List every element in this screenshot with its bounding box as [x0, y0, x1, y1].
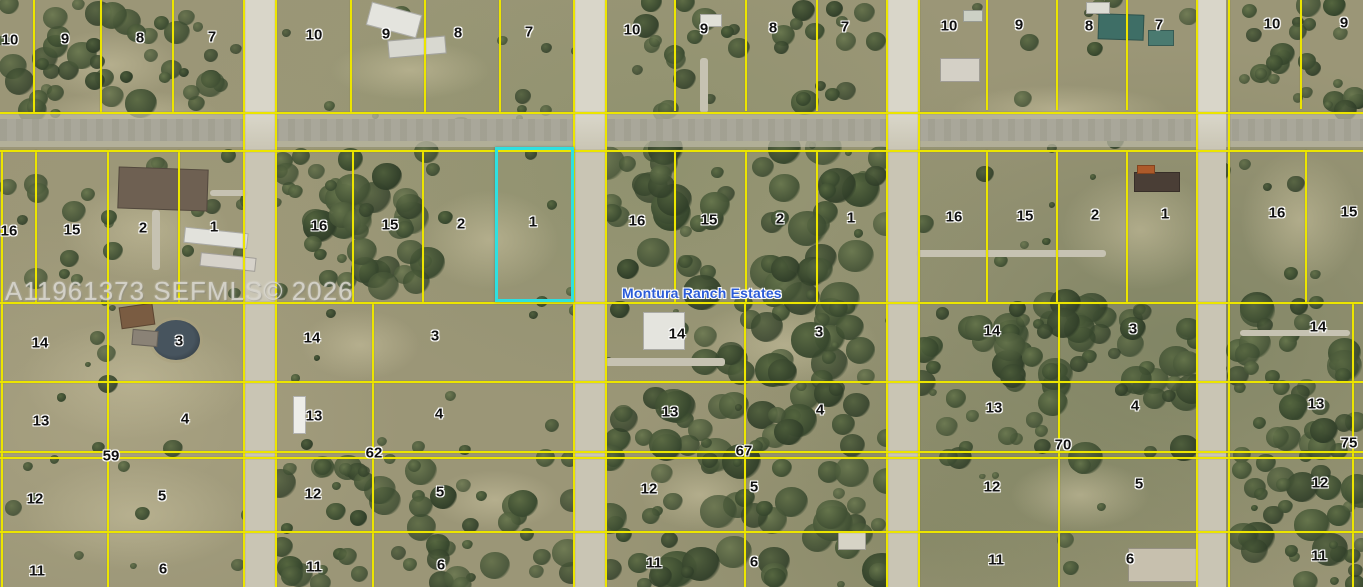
mls-watermark: A11961373 SEFMLS© 2026	[5, 276, 354, 307]
street-number-label: 75	[1341, 435, 1358, 452]
street-number-label: 70	[1055, 437, 1072, 454]
lot-number-label: 12	[27, 491, 44, 508]
street-number-label: 59	[103, 448, 120, 465]
lot-number-label: 8	[454, 25, 462, 42]
lot-number-label: 3	[431, 328, 439, 345]
lot-number-label: 2	[776, 211, 784, 228]
street-number-label: 67	[736, 443, 753, 460]
lot-number-label: 14	[984, 323, 1001, 340]
lot-number-label: 11	[306, 559, 322, 576]
lot-number-label: 1	[529, 214, 537, 231]
lot-number-label: 16	[629, 213, 646, 230]
lot-number-label: 15	[382, 217, 399, 234]
lot-number-label: 10	[624, 22, 641, 39]
lot-number-label: 1	[1161, 206, 1169, 223]
lot-number-label: 10	[1264, 16, 1281, 33]
lot-number-label: 16	[1, 223, 18, 240]
lot-number-label: 12	[984, 479, 1001, 496]
mls-aerial-parcel-map: 1098710987109871098710916152116152116152…	[0, 0, 1363, 587]
lot-number-label: 8	[136, 30, 144, 47]
lot-number-label: 9	[61, 31, 69, 48]
lot-number-label: 16	[311, 218, 328, 235]
lot-number-label: 16	[946, 209, 963, 226]
lot-number-label: 2	[139, 220, 147, 237]
lot-number-label: 7	[1155, 17, 1163, 34]
lot-number-label: 13	[986, 400, 1003, 417]
lot-number-label: 4	[1131, 398, 1139, 415]
lot-number-label: 8	[1085, 18, 1093, 35]
lot-number-label: 9	[1015, 17, 1023, 34]
lot-number-label: 3	[175, 333, 183, 350]
lot-number-label: 15	[701, 212, 718, 229]
lot-number-label: 3	[815, 324, 823, 341]
lot-number-label: 14	[304, 330, 321, 347]
lot-number-label: 7	[841, 19, 849, 36]
lot-number-label: 4	[181, 411, 189, 428]
lot-number-label: 5	[158, 488, 166, 505]
lot-number-label: 14	[669, 326, 686, 343]
lot-number-label: 9	[382, 26, 390, 43]
lot-number-label: 6	[1126, 551, 1134, 568]
lot-number-label: 2	[457, 216, 465, 233]
lot-number-label: 4	[816, 402, 824, 419]
lot-number-label: 1	[210, 219, 218, 236]
lot-number-label: 12	[305, 486, 322, 503]
lot-number-label: 15	[64, 222, 81, 239]
lot-number-label: 13	[306, 408, 323, 425]
lot-number-label: 6	[437, 557, 445, 574]
lot-number-label: 2	[1091, 207, 1099, 224]
lot-number-label: 16	[1269, 205, 1286, 222]
lot-number-label: 4	[435, 406, 443, 423]
lot-number-label: 14	[1310, 319, 1327, 336]
lot-number-label: 8	[769, 20, 777, 37]
street-number-label: 62	[366, 445, 383, 462]
lot-number-label: 6	[750, 554, 758, 571]
lot-number-label: 5	[436, 484, 444, 501]
lot-number-label: 1	[847, 210, 855, 227]
lot-number-label: 12	[641, 481, 658, 498]
subdivision-label: Montura Ranch Estates	[622, 285, 782, 301]
lot-number-label: 15	[1341, 204, 1358, 221]
lot-number-label: 7	[525, 24, 533, 41]
lot-number-label: 11	[1311, 548, 1327, 565]
lot-number-label: 9	[700, 21, 708, 38]
lot-number-label: 9	[1340, 15, 1348, 32]
lot-number-label: 11	[29, 563, 45, 580]
lot-number-label: 15	[1017, 208, 1034, 225]
lot-number-label: 13	[33, 413, 50, 430]
lot-number-label: 10	[941, 18, 958, 35]
lot-number-label: 3	[1129, 321, 1137, 338]
lot-number-label: 7	[208, 29, 216, 46]
lot-number-label: 10	[2, 32, 19, 49]
lot-number-label: 12	[1312, 475, 1329, 492]
lot-number-label: 11	[646, 555, 662, 572]
lot-number-label: 10	[306, 27, 323, 44]
lot-number-label: 11	[988, 552, 1004, 569]
lot-number-label: 14	[32, 335, 49, 352]
lot-number-label: 13	[1308, 396, 1325, 413]
lot-number-label: 5	[1135, 476, 1143, 493]
lot-number-label: 13	[662, 404, 679, 421]
lot-number-label: 6	[159, 561, 167, 578]
lot-number-label: 5	[750, 479, 758, 496]
